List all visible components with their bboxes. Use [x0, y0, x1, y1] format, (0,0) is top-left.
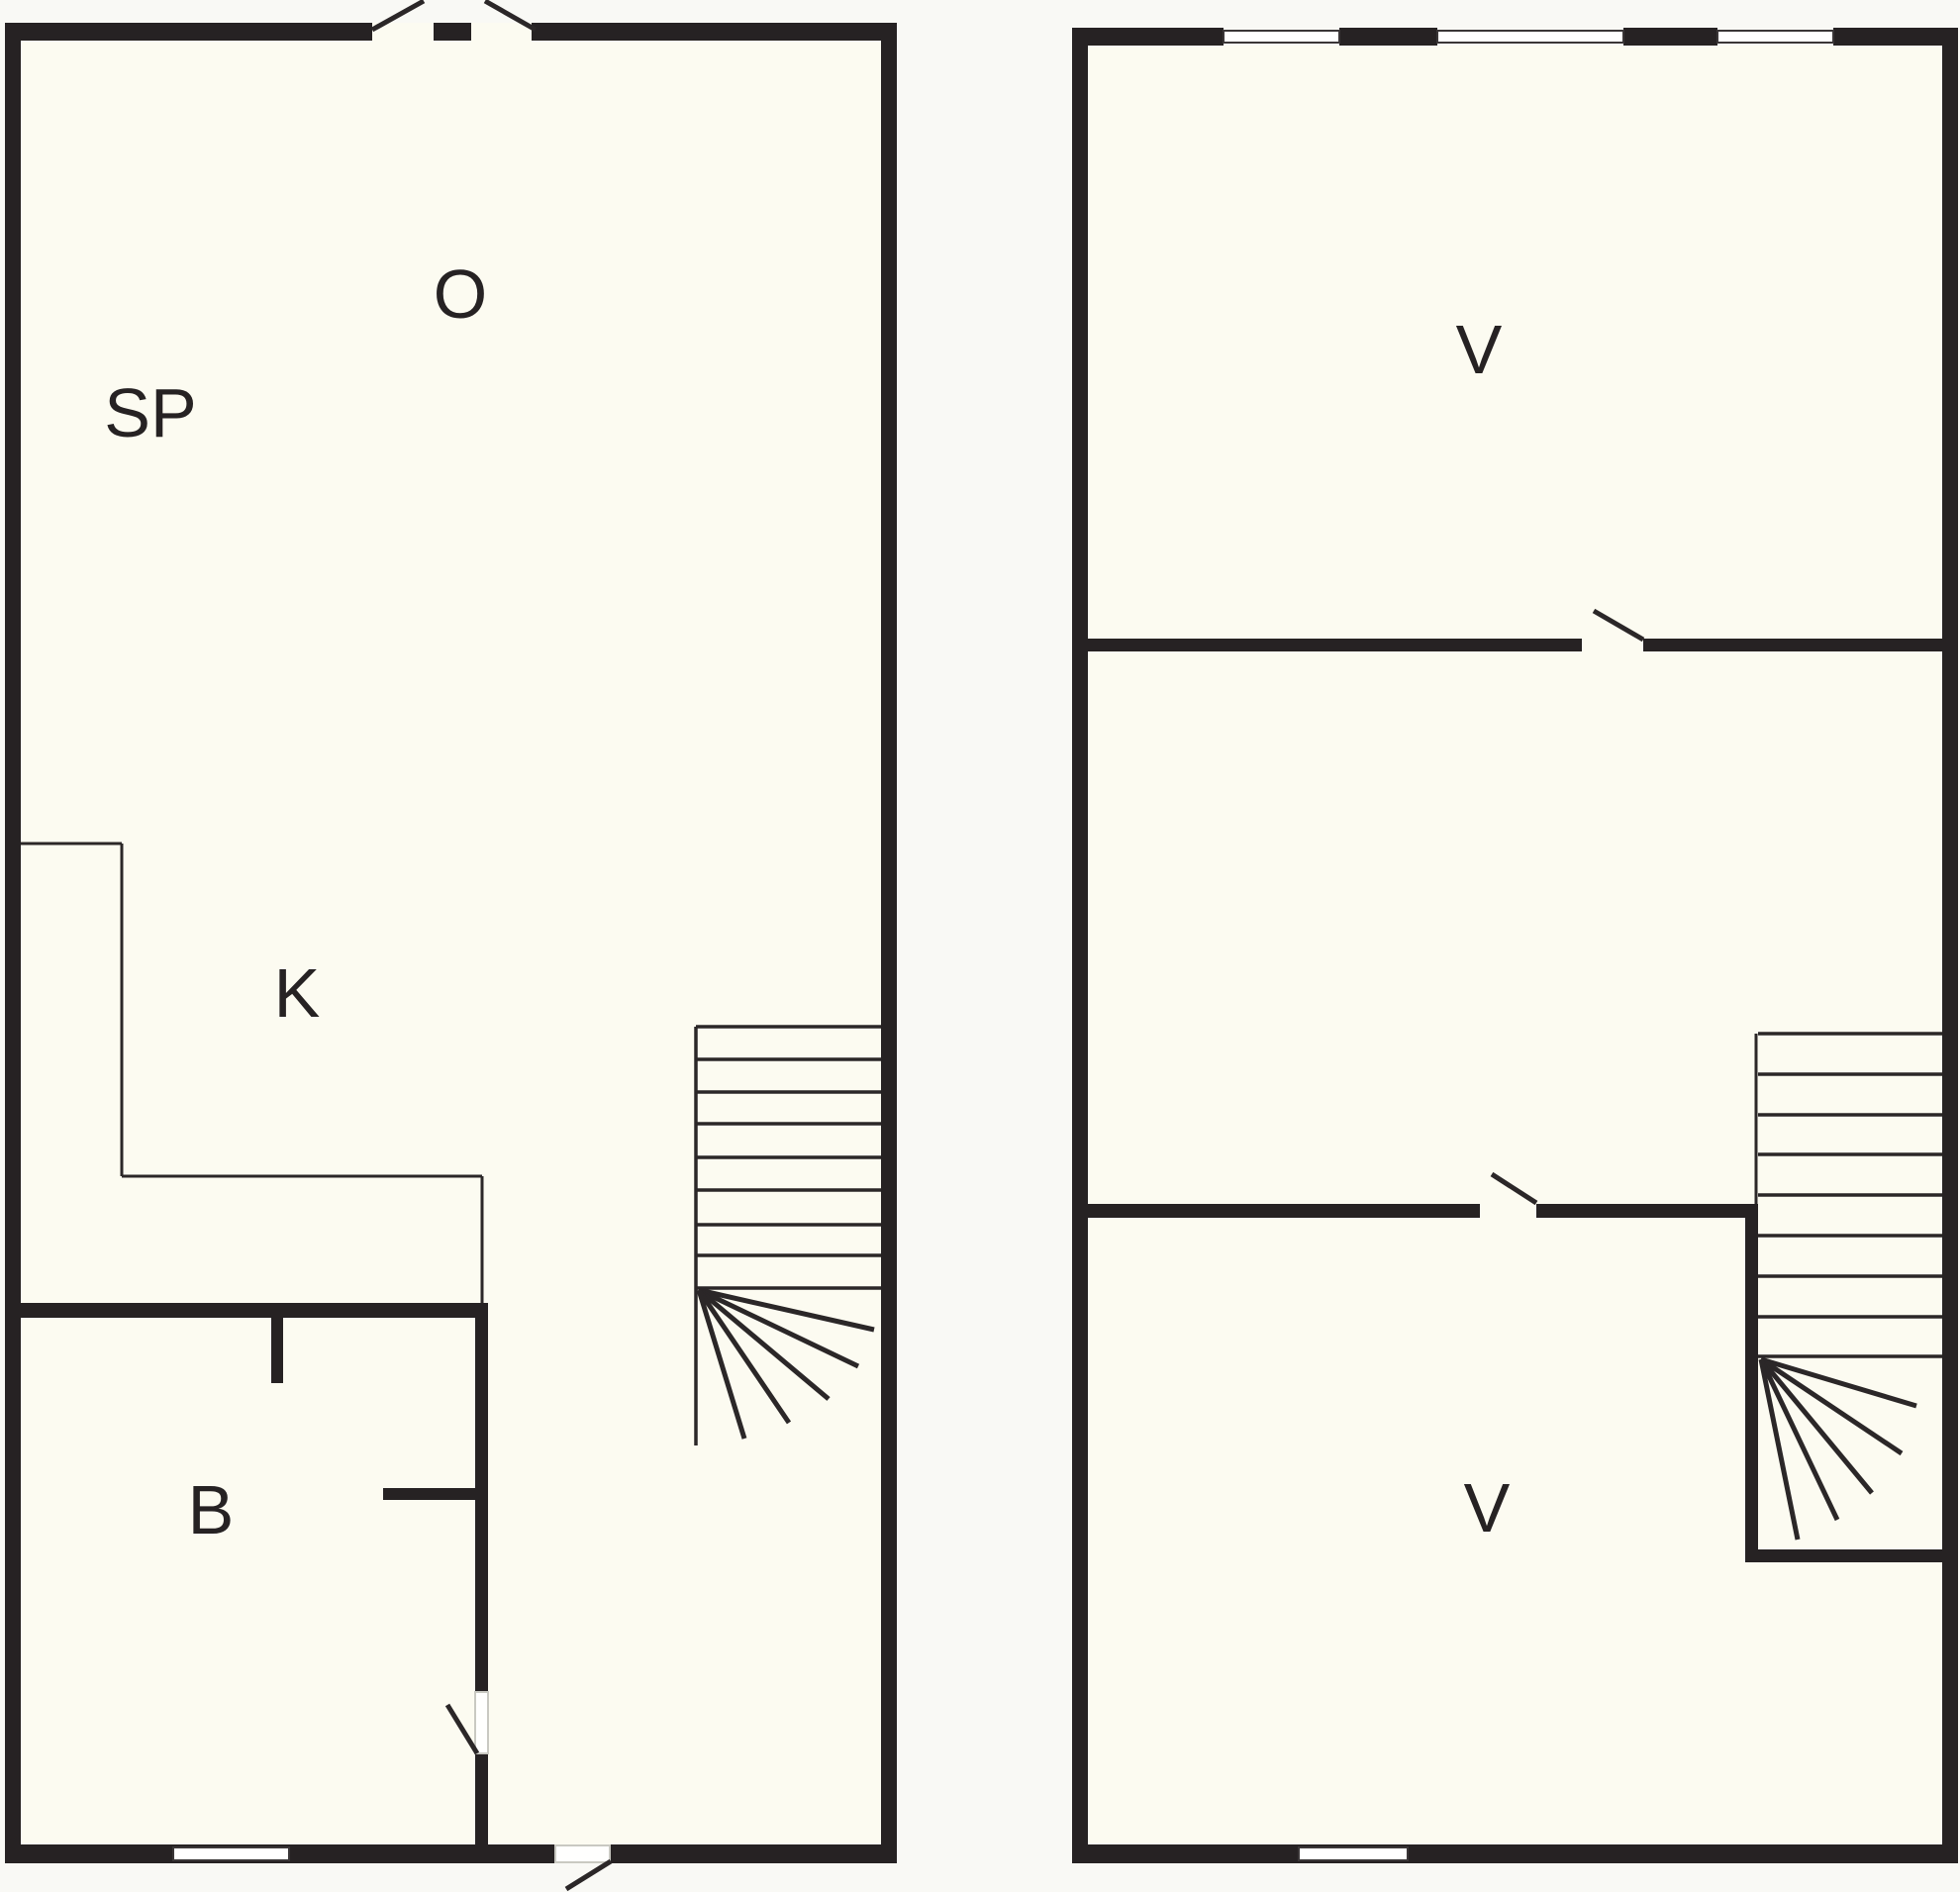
wall-plan1-top-a: [5, 23, 372, 41]
wall-bathroom-stub: [271, 1318, 283, 1383]
room-label-v-bottom: V: [1464, 1469, 1511, 1546]
window-plan1-bottom: [173, 1847, 289, 1860]
doorgap-plan1-top-right: [471, 23, 532, 41]
window-plan2-top-3: [1717, 31, 1833, 43]
room-label-b: B: [188, 1471, 235, 1548]
wall-plan2-mid2-b: [1536, 1204, 1745, 1218]
wall-plan2-top-b: [1339, 28, 1437, 46]
wall-plan1-left: [5, 23, 21, 1863]
wall-bathroom-right-lower: [475, 1754, 488, 1863]
doorgap-plan1-bottom: [555, 1845, 610, 1862]
doorswing-plan1-bottom: [566, 1861, 611, 1889]
wall-plan2-mid1-b: [1643, 639, 1942, 651]
window-plan2-top-1: [1224, 31, 1339, 43]
wall-plan1-right: [881, 23, 897, 1863]
wall-plan1-top-b: [532, 23, 897, 41]
floorplan-page: OSPKBVV: [0, 0, 1960, 1892]
wall-plan2-top-c: [1623, 28, 1717, 46]
room-label-o: O: [434, 255, 487, 333]
wall-plan1-top-doorpost: [434, 23, 471, 41]
wall-stair2-west: [1745, 1204, 1758, 1562]
wall-bathroom-top: [5, 1303, 488, 1318]
wall-plan2-bottom: [1072, 1844, 1958, 1863]
doorleaf-bathroom: [475, 1692, 488, 1753]
room-label-v-top: V: [1456, 311, 1503, 388]
room-label-sp: SP: [104, 374, 196, 451]
wall-plan2-top-d: [1833, 28, 1958, 46]
wall-stair2-bottom: [1745, 1549, 1942, 1562]
wall-plan2-left: [1072, 28, 1088, 1863]
wall-plan2-top-a: [1072, 28, 1224, 46]
wall-shower-partition: [383, 1488, 477, 1500]
floorplan-svg: OSPKBVV: [0, 0, 1960, 1892]
floor-plan2: [1088, 46, 1942, 1844]
room-label-k: K: [274, 954, 321, 1032]
wall-plan2-mid1-a: [1088, 639, 1582, 651]
window-plan2-top-2: [1437, 31, 1623, 43]
window-plan2-bottom: [1299, 1847, 1408, 1860]
wall-plan1-bottom-b: [611, 1844, 897, 1863]
wall-plan2-mid2-a: [1088, 1204, 1480, 1218]
wall-plan2-right: [1942, 28, 1958, 1863]
